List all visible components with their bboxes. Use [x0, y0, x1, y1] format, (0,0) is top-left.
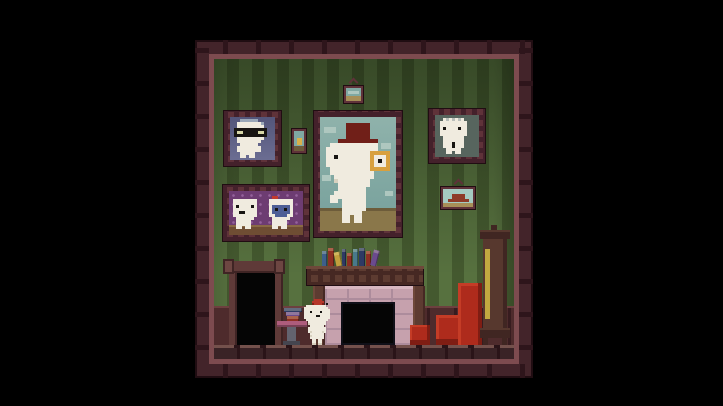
small-picture-landscape-right [440, 186, 476, 210]
door-post-left [229, 271, 237, 345]
landscape-right-canvas [443, 189, 473, 207]
elder-character [437, 118, 476, 154]
portrait-grandfather-canvas [230, 117, 275, 160]
landscape-top-canvas [346, 88, 361, 101]
plank-floor [214, 345, 514, 359]
portrait-couple [222, 184, 310, 242]
room-interior [209, 54, 519, 364]
frame-notches-right [519, 40, 533, 378]
frame-notches-left [195, 40, 209, 378]
table-leg [287, 327, 296, 341]
frame-notches-bottom [195, 364, 533, 378]
ancestor-character [322, 123, 394, 223]
portrait-elder-canvas [435, 115, 479, 157]
small-picture-landscape-top [343, 85, 364, 104]
table-books [283, 308, 303, 321]
door-corner-block-left [223, 259, 234, 274]
portrait-couple-canvas [229, 191, 303, 235]
clock-foot [502, 338, 507, 345]
still-life-table [294, 146, 304, 151]
portrait-ancestor-canvas [320, 117, 396, 231]
door-post-right [275, 271, 283, 345]
frame-notches-top [195, 40, 533, 54]
fireplace-mantel [306, 266, 424, 286]
book-spine [359, 248, 365, 266]
clock-pendulum [485, 249, 490, 319]
armchair-back [458, 283, 482, 345]
couple-characters [230, 196, 302, 229]
still-life-fruit [297, 138, 302, 145]
book-spine [347, 253, 352, 266]
book-spine [342, 249, 346, 266]
still-life-canvas [294, 131, 304, 151]
door-corner-block-right [274, 259, 285, 274]
fireplace-opening [341, 302, 395, 345]
ottoman [410, 325, 430, 345]
player-character-fez[interactable] [304, 299, 330, 345]
clock-foot [483, 338, 488, 345]
book-spine [370, 250, 380, 267]
grandfather-character [231, 119, 273, 158]
game-viewport[interactable] [0, 0, 723, 406]
small-picture-still-life [291, 128, 307, 154]
clock-cornice [480, 230, 510, 239]
book-spine [322, 251, 327, 266]
mantel-books [322, 247, 414, 266]
clock-base [480, 328, 510, 338]
room-frame [195, 40, 533, 378]
table-base [283, 341, 300, 345]
portrait-elder [428, 108, 486, 164]
door-opening[interactable] [237, 273, 275, 345]
portrait-ancestor-tophat-monocle [313, 110, 403, 238]
book-spine [328, 248, 334, 266]
book-spine [353, 249, 358, 266]
portrait-grandfather-glasses [223, 110, 282, 167]
